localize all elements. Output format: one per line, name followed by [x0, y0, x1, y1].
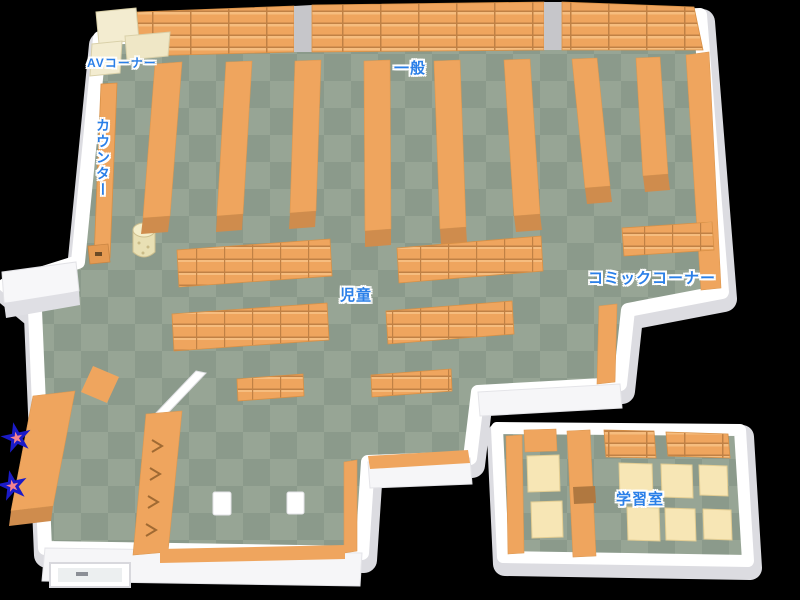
- bookshelf-base: [141, 216, 170, 234]
- back-shelf-section-3: [562, 2, 703, 50]
- bookshelf: [364, 60, 391, 231]
- area-label-children: 児童: [340, 288, 372, 303]
- back-wall-door-gap-2: [544, 2, 562, 50]
- study-table: [531, 501, 563, 538]
- bookshelf-base: [585, 186, 612, 204]
- bookshelf: [434, 60, 466, 229]
- back-shelf-section-2: [312, 2, 544, 52]
- cylinder-dot: [138, 242, 141, 245]
- study-top-shelf: [666, 432, 730, 458]
- bookshelf-base: [365, 229, 391, 247]
- area-label-general: 一般: [394, 61, 426, 76]
- study-divider-gap: [573, 486, 596, 504]
- bookshelf: [290, 60, 321, 213]
- cylinder-dot: [147, 246, 150, 249]
- study-table: [699, 465, 728, 496]
- area-label-comic-corner: コミックコーナー: [588, 271, 716, 286]
- return-box: [287, 492, 304, 514]
- study-top-shelf-small: [524, 429, 557, 452]
- study-table: [527, 455, 560, 492]
- area-label-study-room: 学習室: [616, 492, 664, 507]
- study-top-shelf: [604, 430, 656, 458]
- bookshelf-base: [216, 214, 243, 232]
- bookshelf-base: [643, 174, 670, 192]
- kids-shelf: [237, 374, 304, 401]
- back-wall-shelves: [137, 2, 703, 56]
- counter-dark-notch: [95, 252, 102, 256]
- study-table: [665, 508, 696, 541]
- side-shelf-strip: [344, 460, 357, 553]
- area-label-av-corner: AVコーナー: [87, 57, 157, 69]
- study-table: [661, 464, 693, 498]
- bookshelf-base: [514, 214, 542, 232]
- study-left-wall-shelf: [506, 435, 524, 554]
- entrance-door: [50, 563, 130, 587]
- entrance-door-inner: [58, 568, 122, 582]
- bookshelf-base: [289, 211, 316, 229]
- entrance-door-handle: [76, 572, 88, 576]
- library-floor-map: AVコーナー カウンター 一般 児童 コミックコーナー 学習室 ★ ★: [0, 0, 800, 600]
- area-label-counter: カウンター: [96, 118, 110, 198]
- study-table: [703, 509, 732, 540]
- back-wall-door-gap-1: [294, 5, 312, 52]
- study-table: [627, 507, 660, 541]
- comic-shelf-horizontal: [622, 222, 714, 256]
- floor-plan-drawing: [0, 0, 800, 600]
- comic-shelf-vertical: [597, 304, 617, 384]
- return-box: [213, 492, 231, 515]
- cylinder-dot: [142, 252, 145, 255]
